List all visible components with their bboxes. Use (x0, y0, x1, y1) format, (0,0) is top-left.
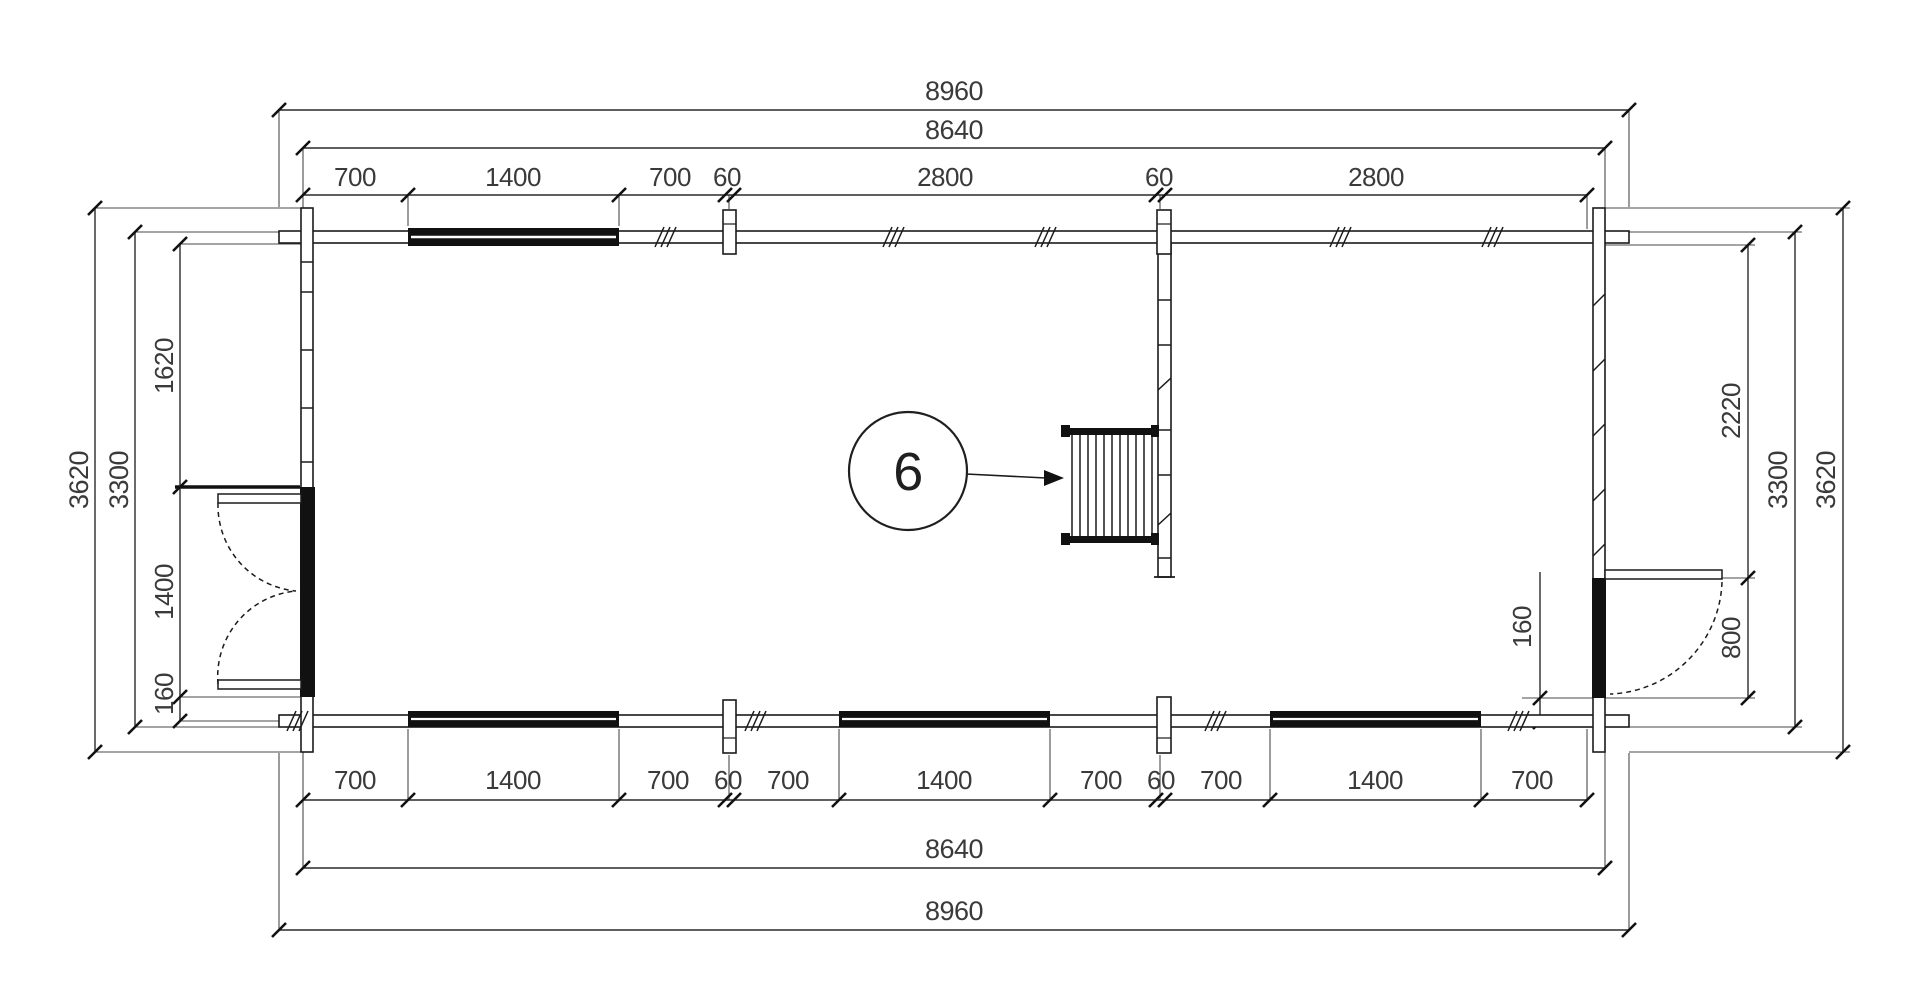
dim-label: 160 (1507, 606, 1537, 648)
double-door-left (218, 494, 301, 689)
dim-left-overall: 3620 (64, 451, 94, 509)
dim-label: 700 (334, 765, 376, 795)
dim-label: 700 (647, 765, 689, 795)
dim-label: 1620 (149, 338, 179, 394)
dim-label: 2800 (1348, 162, 1404, 192)
dim-label: 800 (1716, 617, 1746, 659)
callout: 6 (849, 412, 1064, 530)
dim-label: 60 (713, 162, 741, 192)
dim-label: 160 (149, 673, 179, 715)
dim-label: 1400 (485, 162, 541, 192)
single-door-right (1605, 570, 1722, 694)
dim-label: 60 (1147, 765, 1175, 795)
dim-label: 2800 (917, 162, 973, 192)
callout-number: 6 (893, 442, 923, 502)
dim-label: 1400 (485, 765, 541, 795)
dim-left-shell: 3300 (104, 451, 134, 509)
dim-label: 60 (714, 765, 742, 795)
door-leaf (218, 680, 301, 689)
door-leaf (218, 494, 301, 503)
dim-label: 700 (334, 162, 376, 192)
door-swing-arc (218, 591, 296, 684)
floor-plan-page: 6 8960 8640 700 1400 700 60 2800 60 2800… (0, 0, 1920, 1003)
dim-label: 700 (1511, 765, 1553, 795)
dim-right-overall: 3620 (1811, 451, 1841, 509)
dim-top-overall: 8960 (925, 76, 983, 106)
post-top-2 (1157, 210, 1171, 254)
floor-plan-drawing: 6 8960 8640 700 1400 700 60 2800 60 2800… (0, 0, 1920, 1003)
dim-label: 1400 (916, 765, 972, 795)
dim-bottom-shell: 8640 (925, 834, 983, 864)
dim-label: 60 (1145, 162, 1173, 192)
dim-right-shell: 3300 (1763, 451, 1793, 509)
door-swing-arc (218, 503, 296, 591)
door-swing-arc (1610, 582, 1722, 694)
dim-bottom-overall: 8960 (925, 896, 983, 926)
post-bottom-2 (1157, 697, 1171, 753)
dim-label: 700 (1200, 765, 1242, 795)
callout-arrowhead (1044, 470, 1064, 486)
dim-label: 700 (767, 765, 809, 795)
dim-label: 1400 (1347, 765, 1403, 795)
double-door-closed-leaves (300, 487, 315, 697)
callout-leader-line (966, 474, 1046, 478)
right-door-closed-leaf (1592, 578, 1606, 698)
post-top-1 (723, 210, 736, 254)
dim-label: 700 (1080, 765, 1122, 795)
stairs (1061, 425, 1159, 545)
dim-top-shell: 8640 (925, 115, 983, 145)
post-bottom-1 (723, 700, 736, 753)
door-leaf (1605, 570, 1722, 579)
dim-label: 2220 (1716, 383, 1746, 439)
dimension-ticks (88, 103, 1850, 937)
dim-label: 700 (649, 162, 691, 192)
partition-wall (1158, 243, 1171, 577)
dim-label: 1400 (149, 564, 179, 620)
